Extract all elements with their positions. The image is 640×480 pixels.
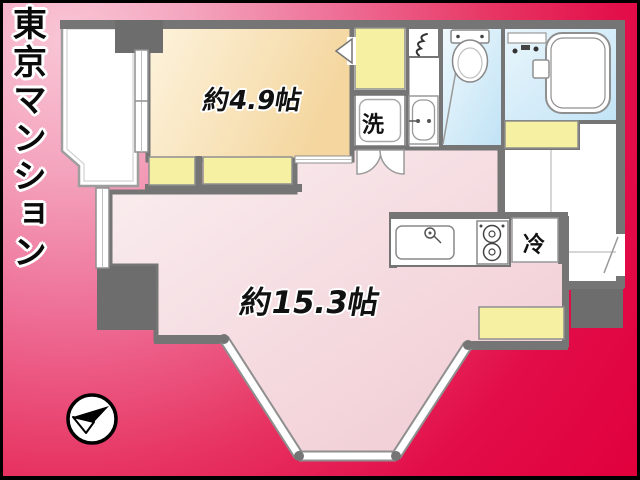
sliding-door-track (295, 156, 352, 163)
water-heater-box (408, 28, 439, 57)
window-ldk-west (96, 188, 109, 268)
wall-entrance-bottom (566, 281, 624, 289)
pillar-bottom-right (571, 284, 623, 328)
washbasin (409, 96, 438, 144)
closet-hall (355, 28, 405, 89)
pillar-top (115, 20, 163, 53)
kitchen-counter (390, 218, 510, 266)
building-title: 東京マンション (7, 6, 44, 278)
kitchen-sink (396, 226, 454, 259)
fridge-label: 冷 (512, 227, 556, 259)
wall-closet-divider (195, 156, 202, 186)
window-small-room-west (135, 50, 148, 152)
closet-small-room-1 (149, 157, 195, 185)
closet-ldk (479, 307, 564, 339)
large-room-size-label: 約15.3帖 (186, 277, 434, 322)
compass-icon (64, 391, 120, 447)
floorplan-advert: 東京マンション 約4.9帖 約15.3帖 洗 冷 (0, 0, 640, 480)
closet-shoe (505, 121, 578, 148)
wall-bay-left (154, 335, 226, 344)
kitchen-stove (477, 221, 508, 264)
wall-bay-right (466, 341, 568, 350)
washer-label: 洗 (351, 107, 395, 139)
small-room-size-label: 約4.9帖 (162, 80, 344, 117)
closet-small-room-2 (203, 157, 292, 184)
pillar-left (97, 266, 156, 330)
